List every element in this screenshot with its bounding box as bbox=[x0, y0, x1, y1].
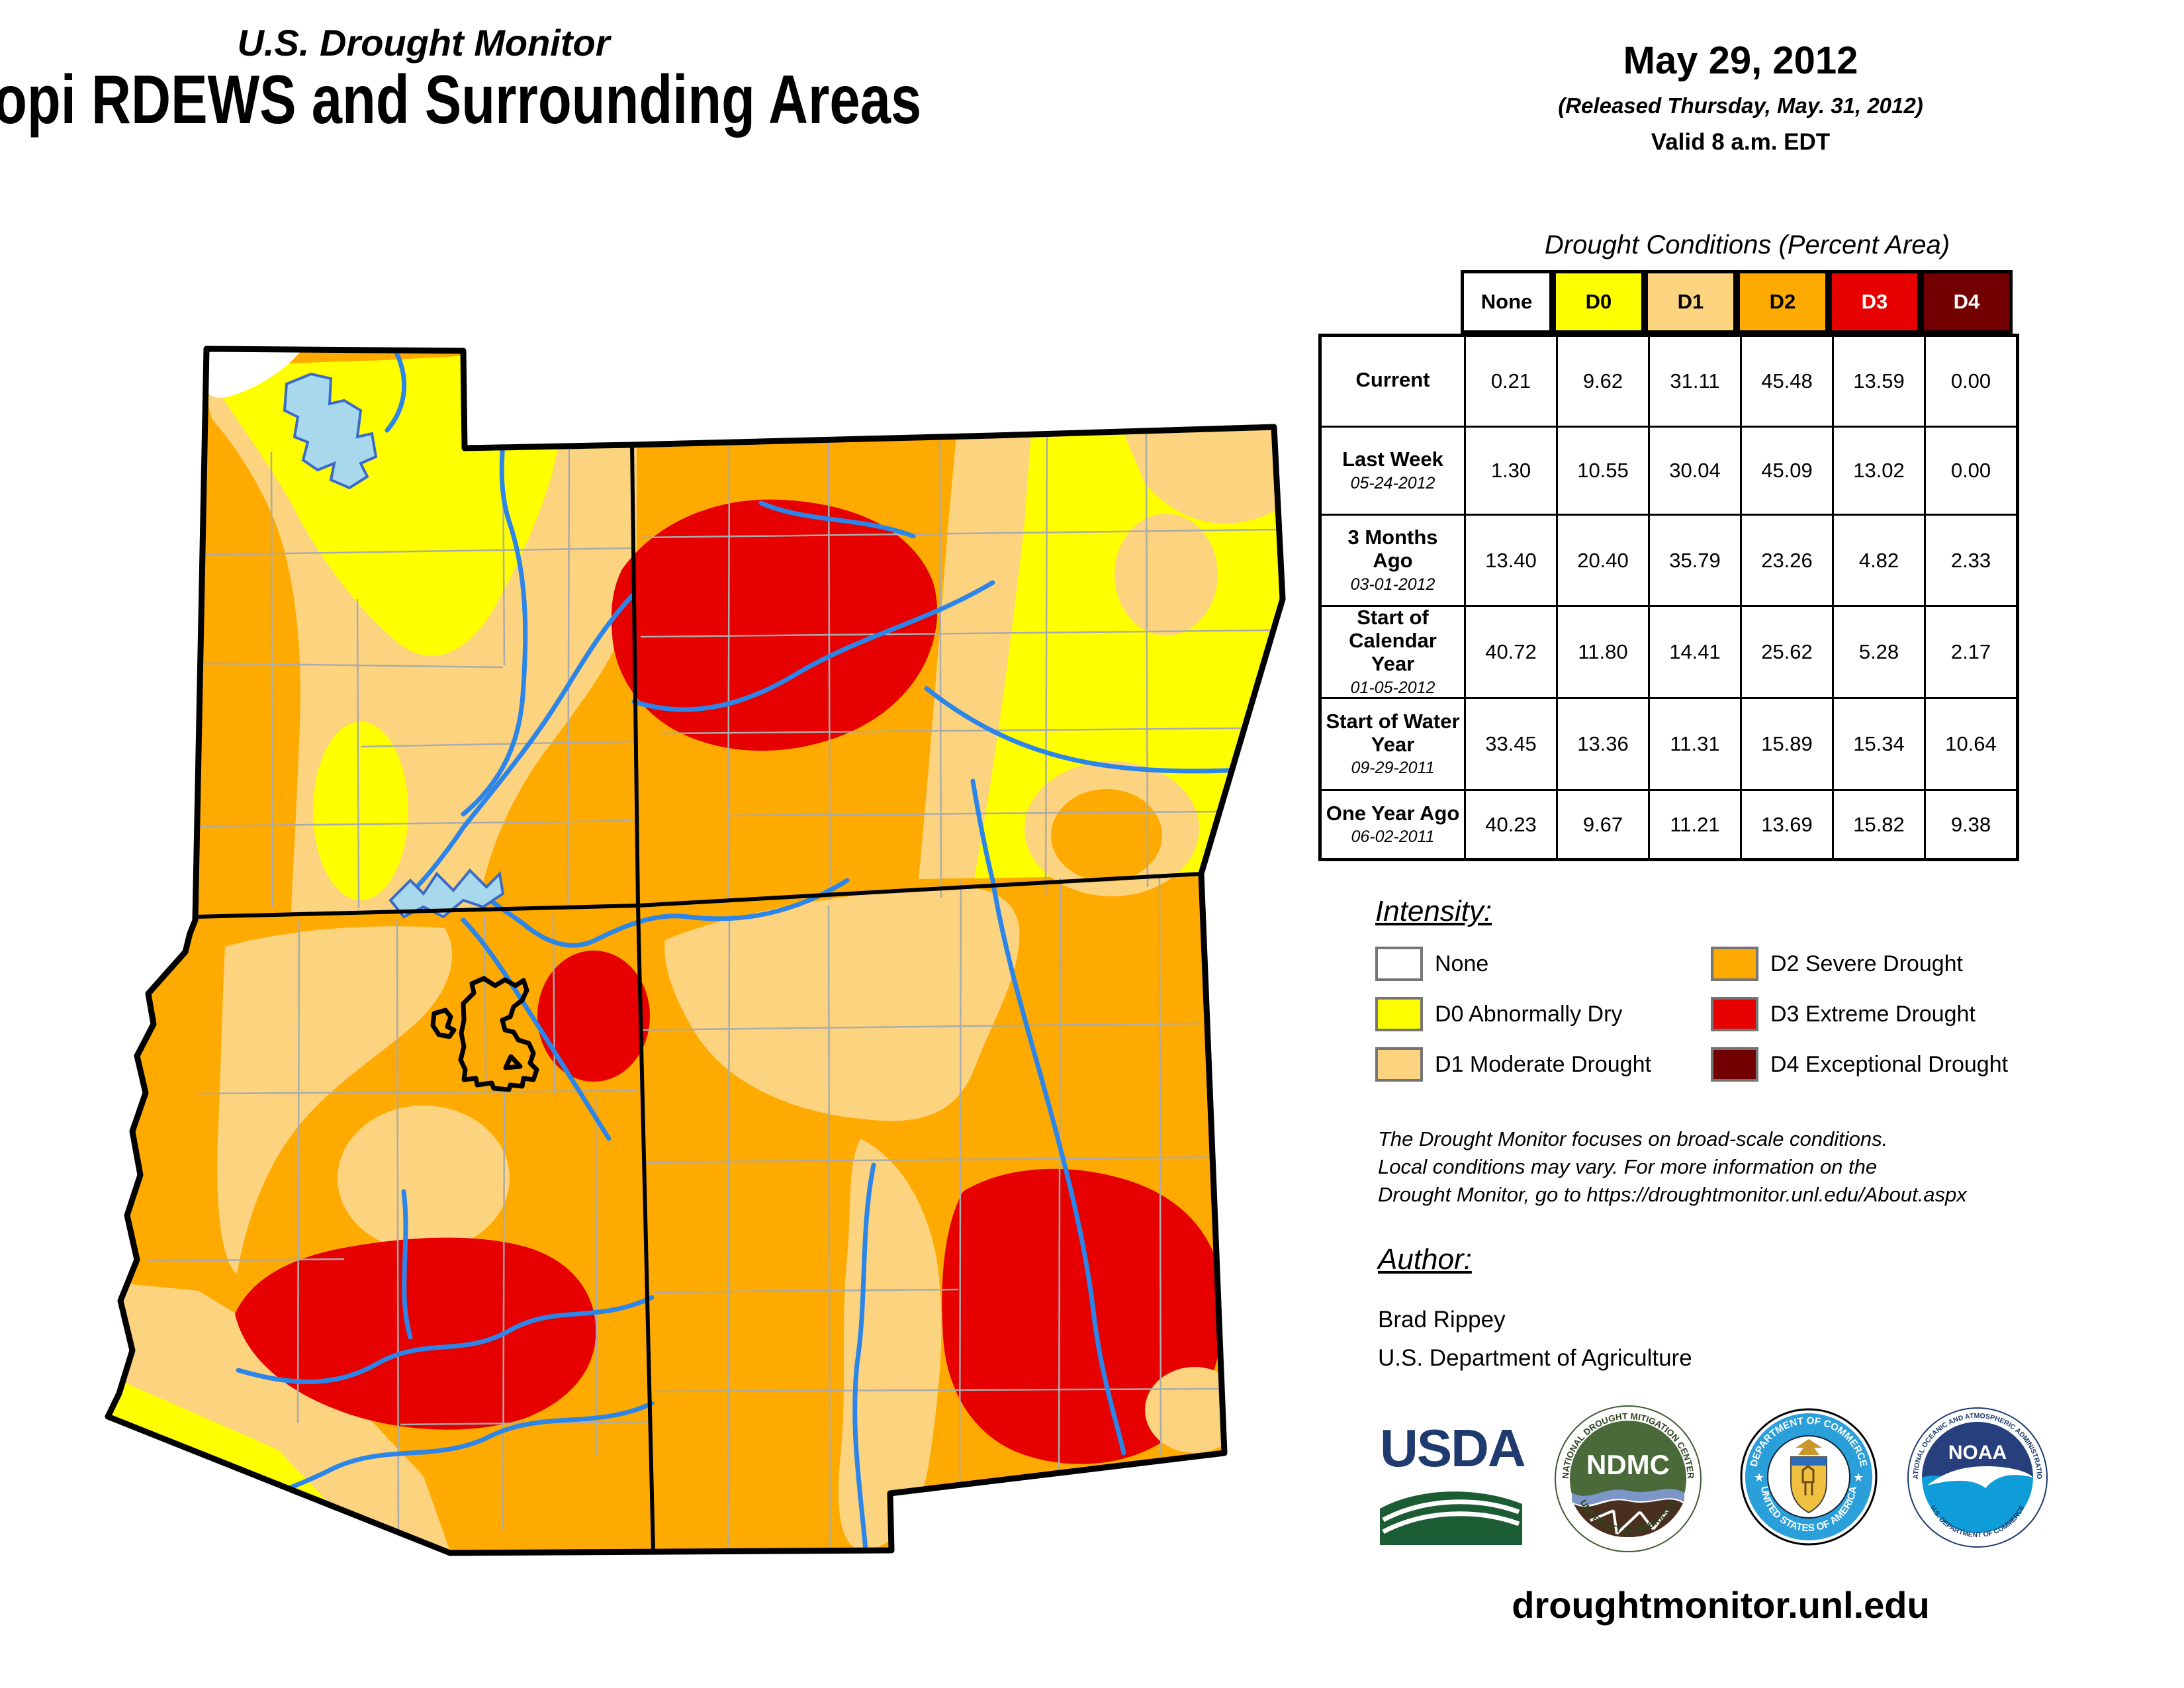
table-cell: 15.82 bbox=[1832, 789, 1924, 858]
az-central-d1-spot bbox=[338, 1105, 510, 1251]
table-cell: 9.67 bbox=[1556, 789, 1648, 858]
table-cell: 40.23 bbox=[1464, 789, 1556, 858]
table-cell: 11.31 bbox=[1648, 697, 1740, 789]
table-row-label: Last Week 05-24-2012 bbox=[1322, 426, 1464, 514]
column-header-d3: D3 bbox=[1829, 270, 1921, 334]
disclaimer-text: The Drought Monitor focuses on broad-sca… bbox=[1378, 1125, 2139, 1209]
author-heading: Author: bbox=[1378, 1243, 1692, 1276]
map-date: May 29, 2012 bbox=[1535, 38, 1946, 83]
none-swatch bbox=[1375, 947, 1423, 981]
legend-item-none: None bbox=[1375, 947, 1651, 981]
table-cell: 0.00 bbox=[1924, 426, 2016, 514]
table-cell: 11.80 bbox=[1556, 605, 1648, 697]
ndmc-logo: NDMC NATIONAL DROUGHT MITIGATION CENTER … bbox=[1554, 1405, 1703, 1554]
released-date: (Released Thursday, May. 31, 2012) bbox=[1535, 93, 1946, 118]
table-cell: 13.36 bbox=[1556, 697, 1648, 789]
column-header-none: None bbox=[1461, 270, 1553, 334]
d1-swatch bbox=[1375, 1047, 1423, 1082]
legend-item-d2: D2 Severe Drought bbox=[1711, 947, 2008, 981]
utah-sw-d0-spot bbox=[313, 722, 408, 900]
co-south-d2-spot bbox=[1051, 789, 1162, 882]
table-cell: 35.79 bbox=[1648, 514, 1740, 605]
d3-swatch bbox=[1711, 997, 1758, 1031]
legend-item-d3: D3 Extreme Drought bbox=[1711, 997, 2008, 1031]
column-header-d1: D1 bbox=[1645, 270, 1737, 334]
usda-logo-text: USDA bbox=[1380, 1418, 1522, 1479]
d4-swatch bbox=[1711, 1047, 1758, 1082]
drought-layers bbox=[66, 349, 1283, 1589]
table-cell: 10.64 bbox=[1924, 697, 2016, 789]
table-cell: 40.72 bbox=[1464, 605, 1556, 697]
date-block: May 29, 2012 (Released Thursday, May. 31… bbox=[1535, 38, 1946, 156]
table-cell: 13.02 bbox=[1832, 426, 1924, 514]
table-row-label: Current bbox=[1322, 337, 1464, 426]
table-header-row: None D0 D1 D2 D3 D4 bbox=[1461, 270, 2013, 334]
doc-star-right: ★ bbox=[1853, 1471, 1864, 1484]
column-header-d4: D4 bbox=[1921, 270, 2013, 334]
noaa-logo-text: NOAA bbox=[1948, 1442, 2007, 1464]
legend-heading: Intensity: bbox=[1375, 895, 2008, 928]
table-cell: 10.55 bbox=[1556, 426, 1648, 514]
table-cell: 33.45 bbox=[1464, 697, 1556, 789]
usda-logo: USDA bbox=[1380, 1418, 1522, 1548]
doc-star-left: ★ bbox=[1754, 1471, 1764, 1484]
table-cell: 2.17 bbox=[1924, 605, 2016, 697]
column-header-d2: D2 bbox=[1737, 270, 1829, 334]
table-cell: 25.62 bbox=[1740, 605, 1832, 697]
table-cell: 30.04 bbox=[1648, 426, 1740, 514]
table-cell: 31.11 bbox=[1648, 337, 1740, 426]
table-cell: 9.38 bbox=[1924, 789, 2016, 858]
table-cell: 13.59 bbox=[1832, 337, 1924, 426]
table-cell: 15.89 bbox=[1740, 697, 1832, 789]
d0-swatch bbox=[1375, 997, 1423, 1031]
table-cell: 14.41 bbox=[1648, 605, 1740, 697]
table-cell: 23.26 bbox=[1740, 514, 1832, 605]
table-row-label: Start of Water Year 09-29-2011 bbox=[1322, 697, 1464, 789]
table-cell: 2.33 bbox=[1924, 514, 2016, 605]
table-title: Drought Conditions (Percent Area) bbox=[1453, 230, 2042, 260]
legend-item-d4: D4 Exceptional Drought bbox=[1711, 1047, 2008, 1082]
table-row-label: One Year Ago 06-02-2011 bbox=[1322, 789, 1464, 858]
legend-item-d1: D1 Moderate Drought bbox=[1375, 1047, 1651, 1082]
table-cell: 4.82 bbox=[1832, 514, 1924, 605]
table-cell: 9.62 bbox=[1556, 337, 1648, 426]
table-cell: 1.30 bbox=[1464, 426, 1556, 514]
valid-time: Valid 8 a.m. EDT bbox=[1535, 129, 1946, 156]
usda-field-icon bbox=[1380, 1479, 1522, 1545]
table-cell: 0.00 bbox=[1924, 337, 2016, 426]
author-name: Brad Rippey bbox=[1378, 1307, 1692, 1333]
table-row-label: Start of Calendar Year 01-05-2012 bbox=[1322, 605, 1464, 697]
table-row-label: 3 Months Ago 03-01-2012 bbox=[1322, 514, 1464, 605]
intensity-legend: Intensity: None D0 Abnormally Dry D1 Mod… bbox=[1375, 895, 2008, 1082]
author-org: U.S. Department of Agriculture bbox=[1378, 1345, 1692, 1372]
table-cell: 11.21 bbox=[1648, 789, 1740, 858]
drought-map bbox=[0, 0, 1390, 1688]
table-cell: 15.34 bbox=[1832, 697, 1924, 789]
author-block: Author: Brad Rippey U.S. Department of A… bbox=[1378, 1243, 1692, 1372]
table-cell: 13.69 bbox=[1740, 789, 1832, 858]
commerce-logo: DEPARTMENT OF COMMERCE UNITED STATES OF … bbox=[1739, 1407, 1878, 1546]
noaa-logo: NOAA NATIONAL OCEANIC AND ATMOSPHERIC AD… bbox=[1907, 1407, 2048, 1548]
table-cell: 0.21 bbox=[1464, 337, 1556, 426]
table-cell: 45.09 bbox=[1740, 426, 1832, 514]
table-cell: 45.48 bbox=[1740, 337, 1832, 426]
website-url: droughtmonitor.unl.edu bbox=[1423, 1583, 2019, 1626]
ndmc-logo-text: NDMC bbox=[1586, 1449, 1670, 1480]
table-cell: 13.40 bbox=[1464, 514, 1556, 605]
monitor-title: U.S. Drought Monitor bbox=[192, 21, 655, 64]
d2-swatch bbox=[1711, 947, 1758, 981]
drought-table: Current 0.21 9.62 31.11 45.48 13.59 0.00… bbox=[1318, 334, 2019, 861]
table-cell: 20.40 bbox=[1556, 514, 1648, 605]
page-title: Hopi RDEWS and Surrounding Areas bbox=[0, 61, 921, 140]
table-cell: 5.28 bbox=[1832, 605, 1924, 697]
column-header-d0: D0 bbox=[1553, 270, 1645, 334]
legend-item-d0: D0 Abnormally Dry bbox=[1375, 997, 1651, 1031]
